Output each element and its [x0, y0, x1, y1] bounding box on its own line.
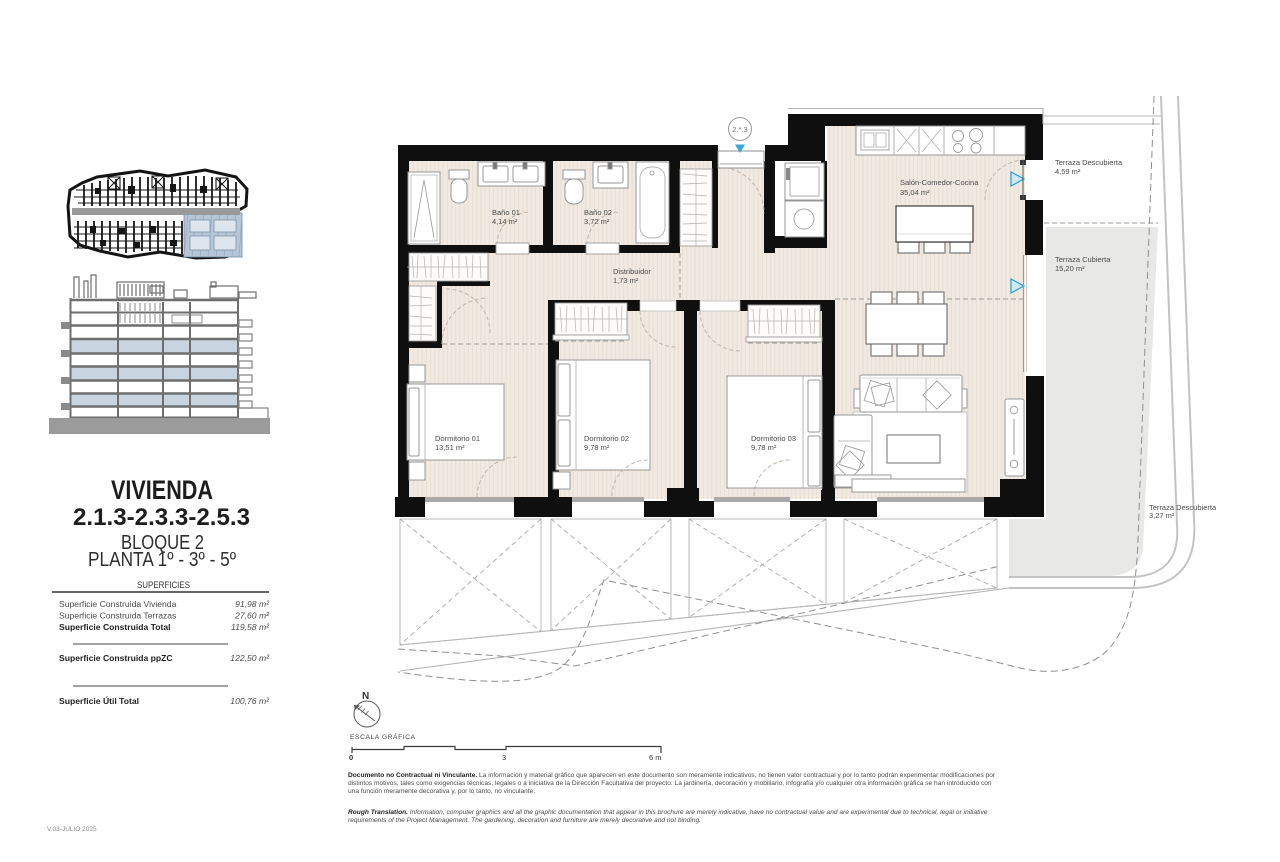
svg-text:Superficie Construida Vivienda: Superficie Construida Vivienda: [59, 599, 177, 609]
svg-text:1,73 m²: 1,73 m²: [613, 276, 639, 285]
svg-text:2.*.3: 2.*.3: [732, 125, 747, 134]
svg-text:Superficie Construida ppZC: Superficie Construida ppZC: [59, 653, 173, 663]
svg-text:91,98 m²: 91,98 m²: [235, 599, 270, 609]
svg-text:3: 3: [502, 753, 506, 762]
svg-text:Dormitorio 01: Dormitorio 01: [435, 434, 480, 443]
svg-text:4,59 m²: 4,59 m²: [1055, 167, 1081, 176]
svg-text:4,14 m²: 4,14 m²: [492, 217, 518, 226]
svg-text:Superficie Construida Total: Superficie Construida Total: [59, 622, 171, 632]
svg-text:2.1.3-2.3.3-2.5.3: 2.1.3-2.3.3-2.5.3: [73, 504, 250, 531]
svg-text:Salón-Comedor-Cocina: Salón-Comedor-Cocina: [900, 178, 979, 187]
svg-text:VIVIENDA: VIVIENDA: [111, 475, 213, 505]
svg-text:9,78 m²: 9,78 m²: [584, 443, 610, 452]
svg-text:Dormitorio 03: Dormitorio 03: [751, 434, 796, 443]
svg-text:122,50 m²: 122,50 m²: [230, 653, 270, 663]
svg-text:Distribuidor: Distribuidor: [613, 267, 651, 276]
svg-text:Dormitorio 02: Dormitorio 02: [584, 434, 629, 443]
svg-text:ESCALA GRÁFICA: ESCALA GRÁFICA: [350, 732, 416, 741]
svg-text:13,51 m²: 13,51 m²: [435, 443, 465, 452]
svg-text:0: 0: [349, 753, 353, 762]
svg-text:15,20 m²: 15,20 m²: [1055, 264, 1085, 273]
svg-text:Terraza Cubierta: Terraza Cubierta: [1055, 255, 1111, 264]
svg-text:PLANTA 1º - 3º - 5º: PLANTA 1º - 3º - 5º: [88, 549, 237, 571]
svg-text:Superficie Útil Total: Superficie Útil Total: [59, 695, 139, 706]
svg-text:3,72 m²: 3,72 m²: [584, 217, 610, 226]
svg-text:Baño 02: Baño 02: [584, 208, 612, 217]
svg-text:Baño 01: Baño 01: [492, 208, 520, 217]
svg-text:6 m: 6 m: [649, 753, 662, 762]
svg-text:N: N: [362, 691, 369, 702]
svg-text:SUPERFICIES: SUPERFICIES: [137, 580, 190, 591]
svg-text:119,58 m²: 119,58 m²: [231, 622, 270, 632]
svg-text:100,76 m²: 100,76 m²: [230, 696, 270, 706]
svg-text:9,78 m²: 9,78 m²: [751, 443, 777, 452]
svg-text:35,04 m²: 35,04 m²: [900, 188, 930, 197]
svg-text:Terraza Descubierta: Terraza Descubierta: [1055, 158, 1123, 167]
svg-text:Superficie Construida Terrazas: Superficie Construida Terrazas: [59, 611, 176, 621]
svg-text:3,27 m²: 3,27 m²: [1149, 511, 1175, 520]
svg-text:27,60 m²: 27,60 m²: [234, 611, 270, 621]
svg-text:V.03-JULIO 2025: V.03-JULIO 2025: [47, 826, 97, 833]
